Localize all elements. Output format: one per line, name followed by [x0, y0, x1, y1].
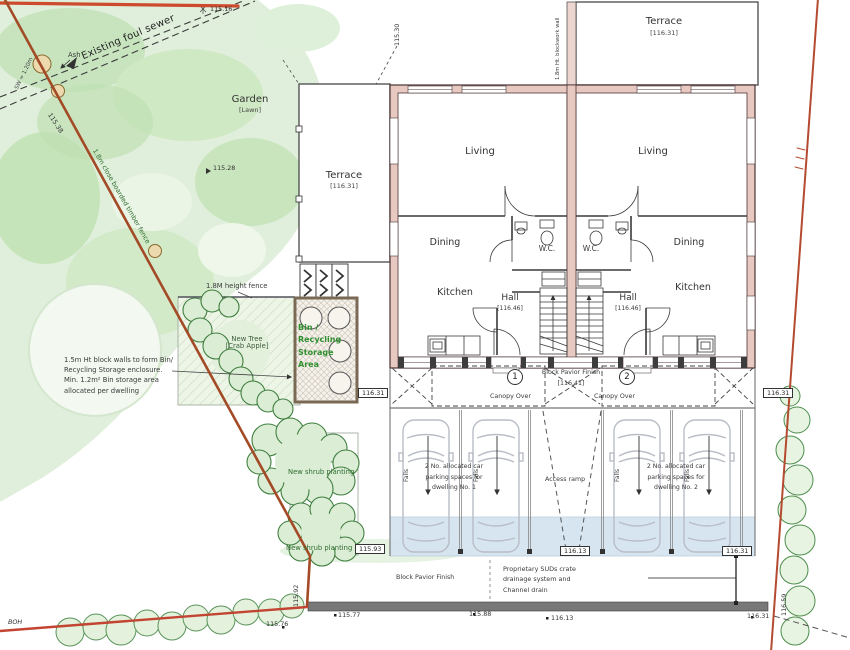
parking-note-2: 2 No. allocated carparking spaces fordwe… — [646, 462, 706, 494]
spot-level-115-16: 115.16 — [210, 6, 232, 13]
living-room-2-label: Living — [620, 146, 686, 157]
block-pavior-bottom-label: Block Pavior Finish — [396, 575, 454, 582]
bin-store-label: Bin /Recycling StorageArea — [298, 322, 341, 372]
living-room-1-label: Living — [447, 146, 513, 157]
spot-level-116-59: 116.59 — [781, 594, 788, 616]
bin-wall-note: 1.5m Ht block walls to form Bin/Recyclin… — [64, 355, 173, 396]
spot-level-115-76: 115.76 — [266, 621, 288, 628]
block-pavior-front-label: Block Pavior Finish — [535, 370, 607, 377]
canopy-over-1-label: Canopy Over — [490, 394, 531, 401]
spot-level-115-28: 115.28 — [213, 165, 235, 172]
boxed-level-front-right: 116.31 — [763, 388, 793, 398]
building-walls — [390, 85, 755, 368]
access-ramp-label: Access ramp — [545, 477, 585, 484]
dining-room-1-label: Dining — [412, 238, 478, 248]
plot-number-1: 1 — [507, 369, 523, 385]
spot-level-115-92: 115.92 — [293, 585, 300, 607]
kitchen-1-label: Kitchen — [420, 288, 490, 298]
wc-2-label: W.C. — [572, 245, 610, 253]
new-shrub-upper-label: New shrub planting — [288, 469, 354, 476]
kitchen-2-label: Kitchen — [658, 283, 728, 293]
block-pavior-front-level: [116.41] — [535, 381, 607, 388]
site-plan-canvas: Garden [Lawn] Terrace [116.31] Terrace [… — [0, 0, 850, 650]
garden-label: Garden — [220, 94, 280, 105]
canopy-over-2-label: Canopy Over — [594, 394, 635, 401]
spot-level-115-88: 115.88 — [469, 611, 491, 618]
spot-level-116-31: 116.31 — [747, 613, 769, 620]
plot-number-2: 2 — [619, 369, 635, 385]
spot-level-115-77: 115.77 — [338, 612, 360, 619]
terrace-right-label: Terrace — [628, 16, 700, 27]
falls-label-3: Falls — [615, 469, 622, 482]
falls-label-2: Falls — [474, 469, 481, 482]
spot-level-116-13: 116.13 — [551, 615, 573, 622]
wc-1-label: W.C. — [528, 245, 566, 253]
ash-tree-label: Ash — [68, 52, 81, 59]
suds-note: Proprietary SUDs cratedrainage system an… — [503, 564, 576, 595]
hall-1-level: [116.46] — [484, 306, 536, 313]
new-tree-label: New Tree[Crab Apple] — [213, 336, 281, 351]
hall-1-label: Hall — [484, 294, 536, 304]
hall-2-label: Hall — [602, 294, 654, 304]
boxed-level-parking-right: 116.31 — [722, 546, 752, 556]
boxed-level-shrub: 115.93 — [355, 544, 385, 554]
height-fence-label: 1.8M height fence — [206, 283, 267, 290]
blockwork-wall-label: 1.8m Ht. blockwork wall — [556, 18, 562, 80]
terrace-left-label: Terrace — [314, 170, 374, 181]
boxed-level-front-left: 116.31 — [358, 388, 388, 398]
cycle-store — [300, 264, 348, 298]
falls-label-4: Falls — [685, 469, 692, 482]
hall-2-level: [116.46] — [602, 306, 654, 313]
garden-sublabel: [Lawn] — [220, 107, 280, 114]
terrace-right-structure — [567, 2, 758, 85]
spot-level-115-30: 115.30 — [394, 24, 401, 46]
new-shrub-lower-label: New shrub planting — [286, 545, 352, 552]
terrace-left-structure — [283, 60, 390, 262]
boxed-level-parking-mid: 116.13 — [560, 546, 590, 556]
terrace-left-level: [116.31] — [314, 183, 374, 190]
dining-room-2-label: Dining — [656, 238, 722, 248]
boh-label: BOH — [8, 619, 22, 626]
falls-label-1: Falls — [404, 469, 411, 482]
terrace-right-level: [116.31] — [628, 30, 700, 37]
